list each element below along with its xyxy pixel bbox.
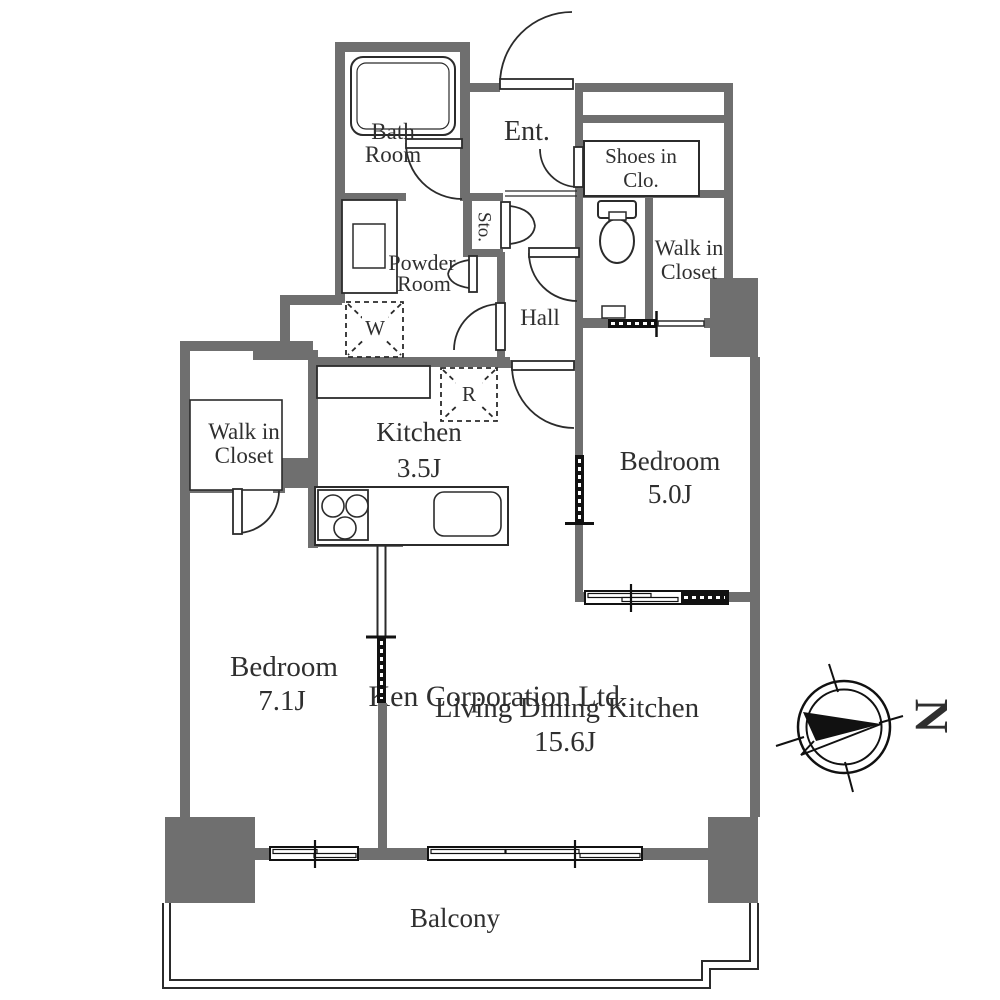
compass-tick bbox=[829, 664, 838, 692]
toilet-door-arc bbox=[529, 253, 577, 301]
room-size-bedroom-right: 5.0J bbox=[648, 479, 692, 509]
kitchen-sink bbox=[434, 492, 501, 536]
storage-bifold-door bbox=[510, 206, 535, 244]
hall-door-arc bbox=[512, 366, 574, 428]
sliding-door-pocket bbox=[681, 592, 728, 603]
wall-segment bbox=[575, 83, 583, 147]
wall-segment bbox=[470, 83, 500, 92]
sliding-panel bbox=[658, 321, 704, 326]
wall-segment bbox=[575, 83, 733, 92]
wall-segment bbox=[280, 300, 290, 345]
window-pane bbox=[431, 850, 505, 854]
room-size-kitchen: 3.5J bbox=[397, 453, 441, 483]
closet-door-leaf bbox=[233, 489, 242, 534]
wall-segment bbox=[728, 592, 752, 602]
shoes-closet-door-arc bbox=[540, 149, 578, 187]
wall-segment bbox=[497, 252, 505, 303]
floor-plan-page: Ken Corporation Ltd. bbox=[0, 0, 1000, 1000]
wall-segment bbox=[180, 341, 190, 817]
room-label-wic-left-2: Closet bbox=[215, 443, 274, 468]
wall-segment bbox=[335, 42, 470, 52]
wall-segment bbox=[253, 341, 313, 360]
compass-north-label: N bbox=[905, 699, 958, 734]
wall-segment bbox=[724, 83, 733, 278]
toilet-door-leaf bbox=[529, 248, 579, 257]
window-pane bbox=[273, 850, 317, 854]
pillar-bottom-left bbox=[165, 817, 255, 903]
wall-segment bbox=[575, 523, 583, 598]
floor-plan: Ken Corporation Ltd. bbox=[0, 0, 1000, 1000]
pillar-top-right bbox=[710, 278, 758, 357]
powder-niche-door-slot bbox=[469, 256, 477, 292]
pillar-bottom-right bbox=[708, 817, 758, 903]
sliding-door-pocket bbox=[575, 455, 584, 523]
hall-door-leaf bbox=[512, 361, 574, 370]
closet-door-arc bbox=[237, 491, 279, 533]
washer-space-label: W bbox=[365, 316, 385, 340]
compass-tick bbox=[879, 716, 903, 723]
compass: N bbox=[776, 664, 958, 792]
sliding-door-pocket bbox=[608, 319, 657, 328]
wall-segment bbox=[583, 115, 724, 123]
toilet-bowl bbox=[600, 219, 634, 263]
kitchen-cabinet bbox=[317, 366, 430, 398]
window-pane bbox=[580, 854, 640, 858]
room-label-wic-right-2: Closet bbox=[661, 259, 717, 284]
wall-segment bbox=[463, 198, 472, 252]
stove-burner bbox=[346, 495, 368, 517]
storage-door-slot bbox=[501, 202, 510, 248]
room-label-balcony: Balcony bbox=[410, 903, 500, 933]
stove-burner bbox=[334, 517, 356, 539]
compass-tick bbox=[845, 762, 853, 792]
compass-needle-filled bbox=[803, 712, 881, 741]
room-size-bedroom-left: 7.1J bbox=[258, 685, 306, 717]
wall-segment bbox=[574, 360, 583, 368]
wall-segment bbox=[378, 703, 387, 850]
room-label-entrance: Ent. bbox=[504, 116, 550, 147]
window-pane bbox=[506, 850, 579, 854]
room-label-shoes-1: Shoes in bbox=[605, 144, 677, 168]
wall-segment bbox=[282, 458, 310, 488]
room-size-ldk: 15.6J bbox=[534, 726, 596, 758]
room-label-bath-1: Bath bbox=[371, 119, 415, 144]
wall-segment bbox=[505, 360, 512, 368]
powder-door-arc bbox=[454, 304, 500, 350]
room-label-shoes-2: Clo. bbox=[623, 168, 659, 192]
windows bbox=[270, 584, 728, 868]
toilet-lid bbox=[609, 212, 626, 220]
wall-segment bbox=[358, 848, 428, 860]
wall-segment bbox=[645, 198, 653, 325]
wall-segment bbox=[704, 318, 712, 328]
room-label-hall: Hall bbox=[520, 305, 560, 330]
wall-segment bbox=[750, 357, 760, 817]
powder-door-leaf bbox=[496, 303, 505, 350]
room-label-powder-2: Room bbox=[397, 271, 451, 296]
wall-segment bbox=[255, 848, 270, 860]
room-label-wic-left-1: Walk in bbox=[208, 419, 280, 444]
entrance-door-leaf bbox=[500, 79, 573, 89]
toilet-shelf bbox=[602, 306, 625, 318]
stove-burner bbox=[322, 495, 344, 517]
refrigerator-space-label: R bbox=[462, 382, 476, 406]
vanity-sink bbox=[353, 224, 385, 268]
room-label-wic-right-1: Walk in bbox=[655, 235, 724, 260]
wall-segment bbox=[460, 42, 470, 193]
room-label-bath-2: Room bbox=[365, 142, 421, 167]
wall-segment bbox=[642, 848, 708, 860]
window-pane bbox=[314, 854, 356, 858]
entrance-door-arc bbox=[500, 12, 572, 84]
room-label-ldk: Living Dining Kitchen bbox=[435, 692, 700, 724]
shoes-closet-door-leaf bbox=[574, 147, 583, 187]
wall-segment bbox=[578, 318, 608, 328]
sliding-door-pocket bbox=[377, 637, 386, 703]
room-label-storage: Sto. bbox=[474, 212, 495, 242]
room-label-bedroom-left: Bedroom bbox=[230, 651, 338, 683]
wall-segment bbox=[575, 592, 585, 602]
room-label-bedroom-right: Bedroom bbox=[620, 446, 721, 476]
room-label-kitchen: Kitchen bbox=[376, 417, 462, 447]
